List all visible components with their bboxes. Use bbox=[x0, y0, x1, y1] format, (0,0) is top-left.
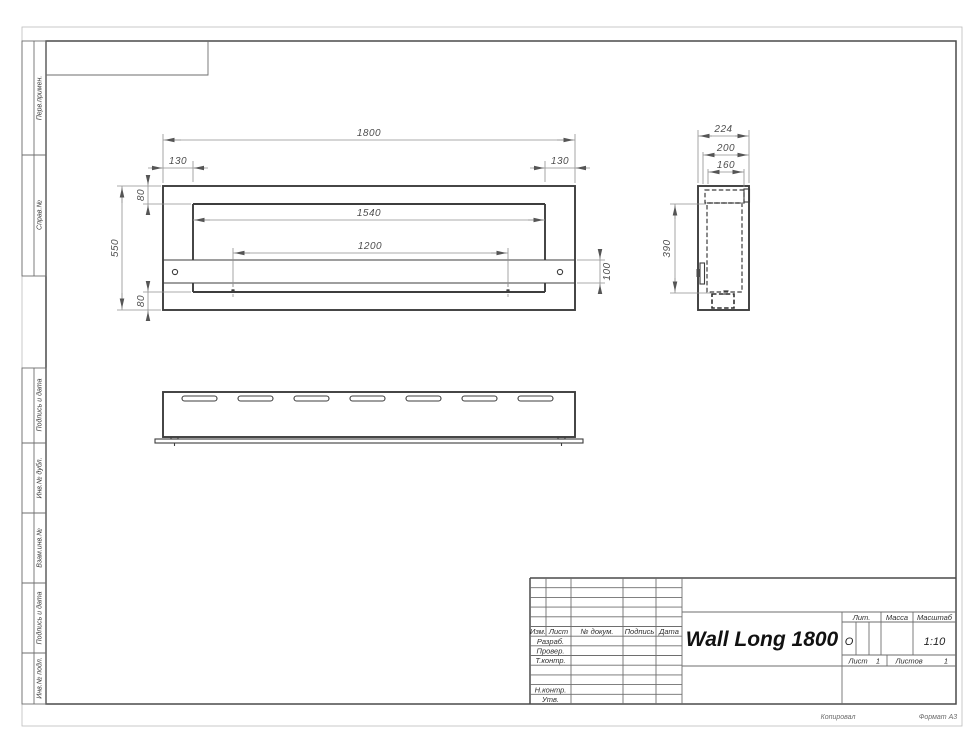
footer-notes: Копировал Формат А3 bbox=[821, 714, 958, 721]
svg-text:1540: 1540 bbox=[357, 208, 381, 219]
burner-section bbox=[712, 291, 734, 308]
sheets-label: Листов bbox=[894, 657, 922, 666]
mass-label: Масса bbox=[886, 613, 908, 622]
margin-label-podpis-data-2: Подпись и дата bbox=[36, 591, 44, 644]
margin-label-inv-podl: Инв.№ подл. bbox=[36, 657, 44, 699]
svg-text:80: 80 bbox=[136, 295, 147, 307]
svg-text:1800: 1800 bbox=[357, 128, 381, 139]
margin-label-vzam-inv: Взам.инв.№ bbox=[37, 528, 44, 568]
drawing-sheet: Перв.примен. Справ.№ Подпись и дата Инв.… bbox=[0, 0, 970, 749]
lit-label: Лит. bbox=[852, 613, 871, 622]
scale-value: 1:10 bbox=[924, 636, 946, 648]
svg-text:200: 200 bbox=[716, 143, 735, 154]
left-margin-columns: Перв.примен. Справ.№ Подпись и дата Инв.… bbox=[22, 41, 46, 704]
lit-value: О bbox=[845, 636, 854, 648]
sheet-label: Лист bbox=[847, 657, 867, 666]
side-view: 224 200 160 390 bbox=[662, 124, 750, 310]
sheets-total: 1 bbox=[944, 657, 948, 666]
bottom-view bbox=[155, 392, 583, 446]
dim-130-left: 130 bbox=[148, 156, 208, 182]
dim-100: 100 bbox=[577, 251, 613, 292]
svg-text:1200: 1200 bbox=[358, 241, 382, 252]
row-tkontr: Т.контр. bbox=[535, 656, 565, 665]
row-razrab: Разраб. bbox=[537, 637, 564, 646]
row-utv: Утв. bbox=[541, 695, 559, 704]
col-izm: Изм. bbox=[530, 627, 546, 636]
topleft-designation-box bbox=[46, 41, 208, 75]
dim-130-right: 130 bbox=[530, 156, 590, 182]
wall-strip bbox=[155, 437, 583, 446]
margin-label-podpis-data-1: Подпись и дата bbox=[36, 378, 44, 431]
margin-label-perv-primen: Перв.примен. bbox=[37, 76, 44, 121]
mount-hole-left bbox=[172, 269, 177, 274]
front-view: 1800 130 130 80 bbox=[110, 128, 613, 319]
margin-label-inv-dubl: Инв.№ дубл. bbox=[36, 457, 44, 498]
svg-text:100: 100 bbox=[602, 262, 613, 280]
format-label: Формат А3 bbox=[919, 714, 957, 721]
svg-text:224: 224 bbox=[713, 124, 732, 135]
copied-label: Копировал bbox=[821, 714, 856, 721]
document-title: Wall Long 1800 bbox=[686, 628, 839, 651]
drawing-canvas: Перв.примен. Справ.№ Подпись и дата Инв.… bbox=[0, 0, 970, 749]
col-date: Дата bbox=[658, 627, 679, 636]
dim-390: 390 bbox=[662, 204, 711, 293]
vent-slots bbox=[182, 396, 553, 401]
sheet-number: 1 bbox=[876, 657, 880, 666]
svg-text:550: 550 bbox=[110, 239, 121, 257]
svg-text:130: 130 bbox=[169, 156, 187, 167]
col-docnum: № докум. bbox=[580, 627, 613, 636]
dim-550: 550 bbox=[110, 186, 161, 310]
dim-1800: 1800 bbox=[163, 128, 575, 183]
svg-text:80: 80 bbox=[136, 189, 147, 201]
mount-hole-right bbox=[557, 269, 562, 274]
col-sign: Подпись bbox=[625, 627, 655, 636]
svg-text:130: 130 bbox=[551, 156, 569, 167]
scale-label: Масштаб bbox=[917, 613, 953, 622]
svg-text:160: 160 bbox=[717, 160, 735, 171]
title-block: Изм. Лист № докум. Подпись Дата Разраб. … bbox=[530, 578, 956, 704]
dim-1200: 1200 bbox=[233, 241, 508, 287]
col-list: Лист bbox=[548, 627, 568, 636]
svg-text:390: 390 bbox=[662, 239, 673, 257]
margin-label-sprav-no: Справ.№ bbox=[37, 200, 44, 230]
dim-1540: 1540 bbox=[193, 208, 545, 220]
row-nkontr: Н.контр. bbox=[535, 685, 567, 694]
dim-160: 160 bbox=[708, 160, 744, 187]
dim-80-top: 80 bbox=[117, 177, 191, 213]
row-prover: Провер. bbox=[537, 646, 565, 655]
sheet-frame bbox=[22, 27, 962, 726]
